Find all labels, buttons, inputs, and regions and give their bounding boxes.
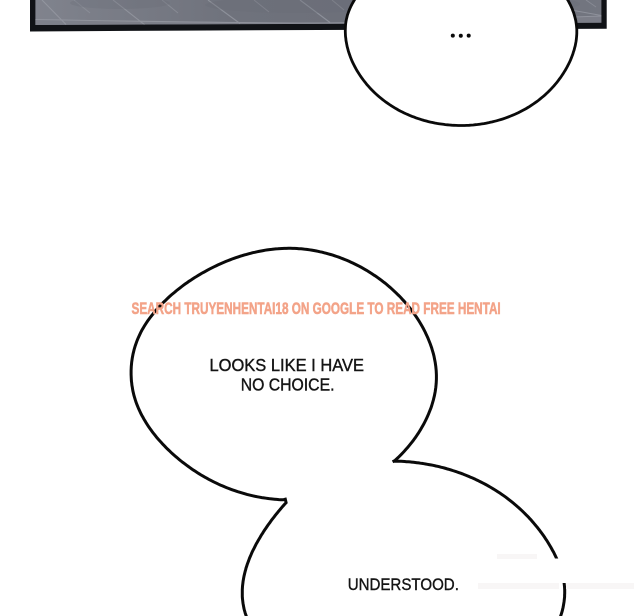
svg-text:LOOKS LIKE I HAVE: LOOKS LIKE I HAVE [210, 355, 365, 375]
svg-text:UNDERSTOOD.: UNDERSTOOD. [348, 575, 459, 594]
svg-text:NO CHOICE.: NO CHOICE. [241, 374, 335, 394]
svg-text:SEARCH TRUYENHENTAI18 ON GOOGL: SEARCH TRUYENHENTAI18 ON GOOGLE TO READ … [132, 300, 501, 318]
